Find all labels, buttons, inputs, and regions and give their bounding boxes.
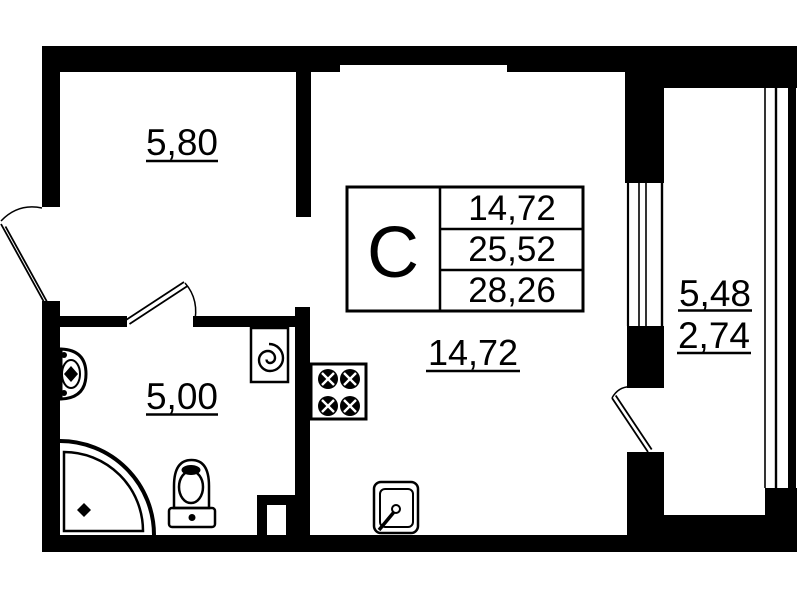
wall-top-inner-right: [507, 65, 625, 72]
bathroom-sink-bolt: [61, 390, 67, 396]
wall-bath-top-right: [193, 316, 310, 327]
living-room-area-label: 14,72: [428, 332, 518, 373]
entry-door-swing: [1, 207, 42, 221]
duct-shaft-hole: [267, 505, 286, 535]
balcony-area-reduced-label: 2,74: [678, 315, 750, 356]
wall-top-inner-left: [42, 65, 340, 72]
stove: [311, 364, 366, 419]
table-total-area: 28,26: [468, 271, 556, 310]
entry-door-leaf: [1, 224, 44, 302]
bathroom-sink: [61, 349, 86, 399]
window-living-balcony: [628, 183, 662, 326]
wall-bottom: [42, 535, 797, 552]
entry-door: [1, 207, 49, 305]
wall-balcony-floor: [627, 515, 765, 535]
entry-door-leaf: [6, 227, 49, 305]
bathroom-door-leaf: [126, 282, 184, 320]
wall-left-lower: [42, 301, 60, 552]
glazing-outer-bar: [788, 88, 796, 488]
table-apartment-area: 25,52: [468, 230, 556, 269]
shower-drain: [77, 503, 91, 517]
shower: [60, 441, 154, 535]
bathroom-sink-bolt: [61, 352, 67, 358]
washing-machine: [251, 328, 288, 382]
bathroom-area-label: 5,00: [146, 376, 218, 417]
wall-balcony-top: [664, 46, 797, 88]
wall-balcony-low: [627, 452, 664, 515]
info-table: С 14,72 25,52 28,26: [347, 187, 583, 311]
bathroom-sink-drain: [64, 366, 78, 382]
balcony-door-leaf: [612, 398, 648, 452]
wall-left-upper: [42, 46, 60, 207]
balcony-glazing: [765, 88, 796, 488]
wall-balcony-mid: [627, 326, 664, 388]
kitchen-sink: [374, 482, 418, 533]
wall-hall-living: [296, 72, 311, 217]
balcony-door: [612, 387, 652, 452]
shower-curtain-arc: [60, 441, 154, 535]
bathroom-door: [126, 282, 196, 325]
table-living-area: 14,72: [468, 189, 556, 228]
toilet-button: [189, 514, 196, 521]
wall-balcony-corner: [765, 488, 797, 535]
wall-balcony-pillar: [625, 46, 664, 183]
washing-machine-drum-spiral: [259, 344, 283, 371]
bathroom-door-leaf: [130, 286, 188, 324]
floor-plan-page: С 14,72 25,52 28,26 5,80 5,00 14,72 5,48…: [0, 0, 799, 600]
hallway-area-label: 5,80: [146, 122, 218, 163]
toilet-hinge: [182, 465, 201, 475]
toilet-seat: [179, 471, 203, 503]
shower-tray: [64, 452, 143, 531]
balcony-door-leaf: [616, 396, 652, 450]
kitchen-sink-faucet-head: [392, 505, 400, 513]
unit-type-letter: С: [367, 213, 419, 293]
wall-top-outer: [42, 46, 625, 65]
balcony-area-full-label: 5,48: [679, 273, 751, 314]
stove-burners: [318, 369, 360, 416]
toilet: [169, 460, 215, 527]
floor-plan: С 14,72 25,52 28,26 5,80 5,00 14,72 5,48…: [0, 0, 799, 600]
wall-bath-top-left: [60, 316, 127, 327]
